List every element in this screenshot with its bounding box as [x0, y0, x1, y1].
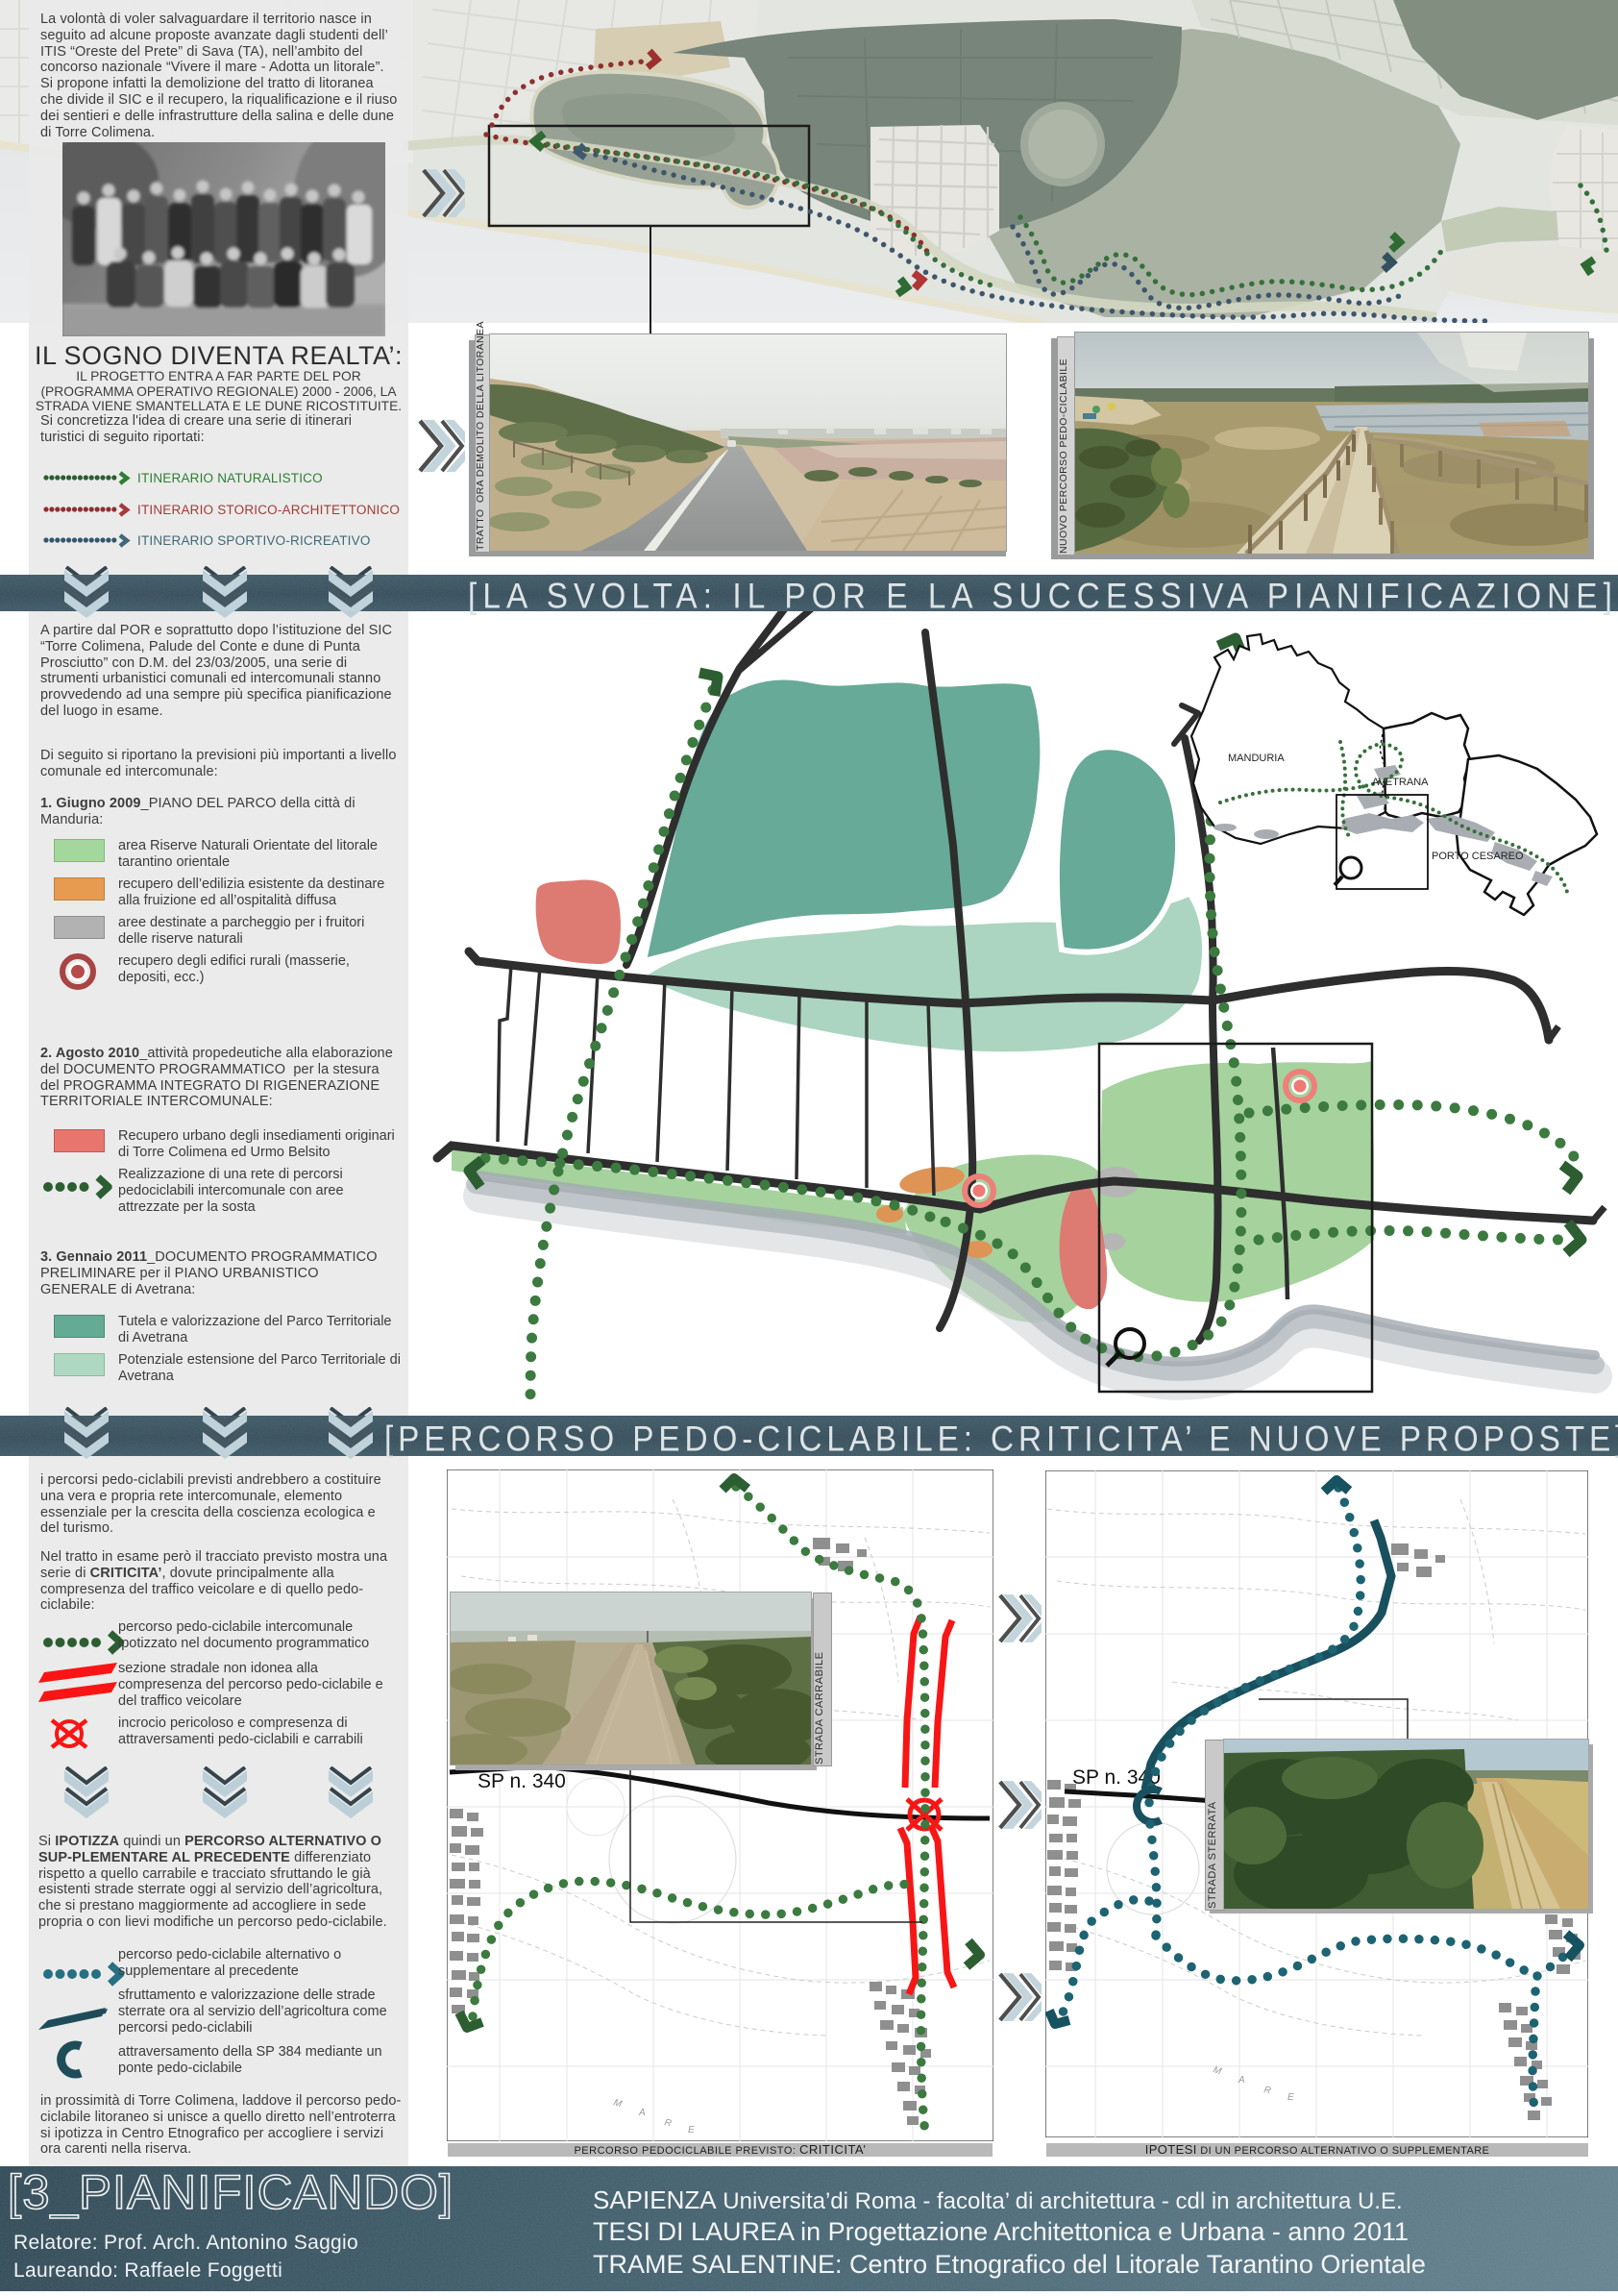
- svg-text:MANDURIA: MANDURIA: [1228, 753, 1285, 764]
- svg-text:AVETRANA: AVETRANA: [1372, 777, 1429, 788]
- svg-text:A: A: [638, 2108, 646, 2118]
- svg-text:PORTO CESAREO: PORTO CESAREO: [1432, 851, 1524, 862]
- svg-text:A: A: [1238, 2075, 1245, 2086]
- svg-text:SP n. 340: SP n. 340: [478, 1770, 566, 1792]
- svg-text:E: E: [688, 2125, 695, 2136]
- svg-text:E: E: [1287, 2092, 1294, 2103]
